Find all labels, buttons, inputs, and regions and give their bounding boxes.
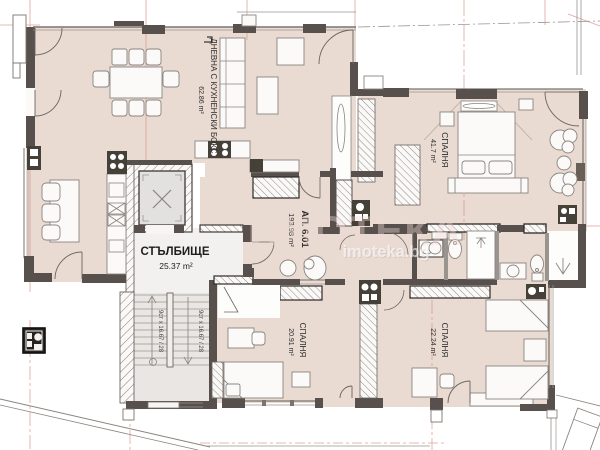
svg-text:9ст x 16.67 / 28: 9ст x 16.67 / 28 xyxy=(197,310,203,353)
svg-text:62.86 m²: 62.86 m² xyxy=(197,86,204,114)
svg-text:СТЪЛБИЩЕ: СТЪЛБИЩЕ xyxy=(140,246,209,258)
svg-text:20.91 m²: 20.91 m² xyxy=(287,328,294,356)
svg-text:22.24 m²: 22.24 m² xyxy=(429,328,436,356)
svg-text:9ст x 16.67 / 28: 9ст x 16.67 / 28 xyxy=(157,310,163,353)
svg-text:imoteka.bg: imoteka.bg xyxy=(342,243,429,261)
svg-text:25.37 m²: 25.37 m² xyxy=(159,261,193,271)
svg-text:41.7 m²: 41.7 m² xyxy=(429,139,436,163)
svg-text:ДНЕВНА С КУХНЕНСКИ БОКС: ДНЕВНА С КУХНЕНСКИ БОКС xyxy=(209,38,218,154)
svg-text:СПАЛНЯ: СПАЛНЯ xyxy=(298,323,307,358)
svg-text:СПАЛНЯ: СПАЛНЯ xyxy=(440,132,450,167)
svg-text:СПАЛНЯ: СПАЛНЯ xyxy=(440,323,449,358)
